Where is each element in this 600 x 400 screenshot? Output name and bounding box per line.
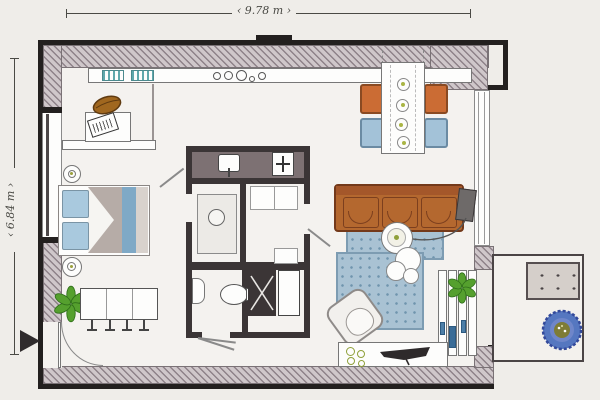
width-dimension-label: ‹ 9.78 m ›	[232, 4, 296, 17]
stove-burner	[249, 76, 255, 82]
dimension-line-top-left	[66, 13, 232, 14]
floor-plan: ‹ 9.78 m › ‹ 6.84 m ›	[0, 0, 600, 400]
outline-topright-return	[488, 85, 508, 90]
decor-bowl	[346, 347, 355, 356]
dimension-line-left-bottom	[14, 252, 15, 354]
height-value: 6.84 m	[4, 191, 17, 229]
heater	[272, 152, 294, 176]
sink	[218, 154, 240, 172]
door-handle	[449, 326, 456, 348]
heater-plus-h	[276, 163, 290, 165]
side-table	[403, 268, 419, 284]
dimension-tick-bottom	[10, 354, 19, 355]
wall-stub-lower	[474, 346, 494, 368]
decor-bowl	[358, 360, 365, 367]
stove-burner	[213, 72, 221, 80]
bathroom-core	[186, 146, 310, 338]
stove-burner	[236, 70, 247, 81]
dish-rack	[102, 70, 124, 81]
toilet	[220, 284, 248, 305]
height-dimension-label: ‹ 6.84 m ›	[4, 166, 24, 254]
core-divider-vertical	[240, 184, 246, 262]
shelf-divider	[274, 187, 275, 209]
shower-door-gap	[184, 194, 192, 222]
lamp-center	[70, 172, 73, 175]
wardrobe-shelf-small	[274, 248, 298, 264]
bed-side-strip	[136, 187, 148, 253]
outline-bottom	[38, 384, 494, 389]
wall-bottom	[43, 366, 494, 384]
stool-foot	[105, 329, 115, 331]
table-divider	[106, 289, 107, 319]
nightstand-lamp	[62, 257, 82, 277]
plant-dot	[394, 235, 399, 240]
bed	[58, 185, 150, 256]
table-runner-dash	[415, 65, 416, 151]
width-value: 9.78 m	[245, 4, 283, 17]
dish-rack	[131, 70, 154, 81]
arrow-right-icon: ›	[287, 4, 291, 17]
nightstand-lamp	[63, 165, 81, 183]
plate	[397, 136, 410, 149]
seat-cushion	[343, 197, 379, 228]
chair-orange	[424, 84, 448, 114]
plate	[396, 99, 409, 112]
plate	[395, 118, 408, 131]
utility-shaft	[248, 270, 276, 316]
bed-runner	[122, 187, 136, 253]
window-right-frame2	[484, 92, 485, 244]
outline-topright-vert	[503, 40, 508, 90]
door-handle	[440, 322, 445, 335]
wash-basin	[192, 278, 205, 304]
table-divider	[132, 289, 133, 319]
pillow	[62, 222, 89, 250]
pillow	[62, 190, 89, 218]
balcony-bench	[526, 262, 580, 300]
dimension-tick-top	[10, 58, 19, 59]
shower-drain	[208, 209, 225, 226]
decor-bowl	[347, 357, 355, 365]
dimension-tick-left	[66, 9, 67, 18]
window-left-frame	[46, 114, 49, 236]
door-handle	[461, 320, 466, 333]
wardrobe-shelves	[250, 186, 298, 210]
sink-faucet	[228, 168, 230, 177]
plate-dot	[401, 103, 405, 107]
dining-table-small	[80, 288, 158, 320]
arrow-down-icon: ›	[4, 183, 17, 187]
shower	[197, 194, 237, 254]
shaft-x-icon	[248, 270, 276, 316]
stove-burner	[258, 72, 266, 80]
plate	[397, 78, 410, 91]
plate-dot	[399, 123, 403, 127]
washing-machine	[278, 270, 300, 316]
plant-icon	[446, 272, 478, 304]
chair-blue	[424, 118, 448, 148]
cabinet-edge	[152, 84, 154, 140]
laptop-keys	[92, 118, 114, 133]
dimension-tick-right	[470, 9, 471, 18]
stool-foot	[139, 329, 149, 331]
stool-foot	[122, 329, 132, 331]
window-right	[474, 90, 490, 246]
decor-bowl	[357, 350, 365, 358]
plate-dot	[402, 141, 406, 145]
wall-stub-upper	[474, 246, 494, 270]
outline-top-step	[256, 35, 292, 41]
dimension-line-left-top	[14, 58, 15, 168]
tv-icon	[376, 344, 434, 366]
cushion-arc	[348, 211, 373, 224]
arrow-left-icon: ‹	[237, 4, 241, 17]
table-runner-dash	[390, 65, 391, 151]
sofa-back	[336, 186, 462, 195]
potted-flower-icon	[540, 308, 584, 352]
window-left-cap-top	[42, 107, 62, 113]
arrow-up-icon: ‹	[4, 233, 17, 237]
stove-burner	[224, 71, 233, 80]
window-right-frame1	[478, 92, 479, 244]
entrance-arrow-icon	[20, 330, 40, 352]
utility-band-wall	[192, 178, 304, 184]
lamp-center	[70, 265, 73, 268]
dimension-line-top-right	[296, 13, 470, 14]
plate-dot	[401, 82, 405, 86]
